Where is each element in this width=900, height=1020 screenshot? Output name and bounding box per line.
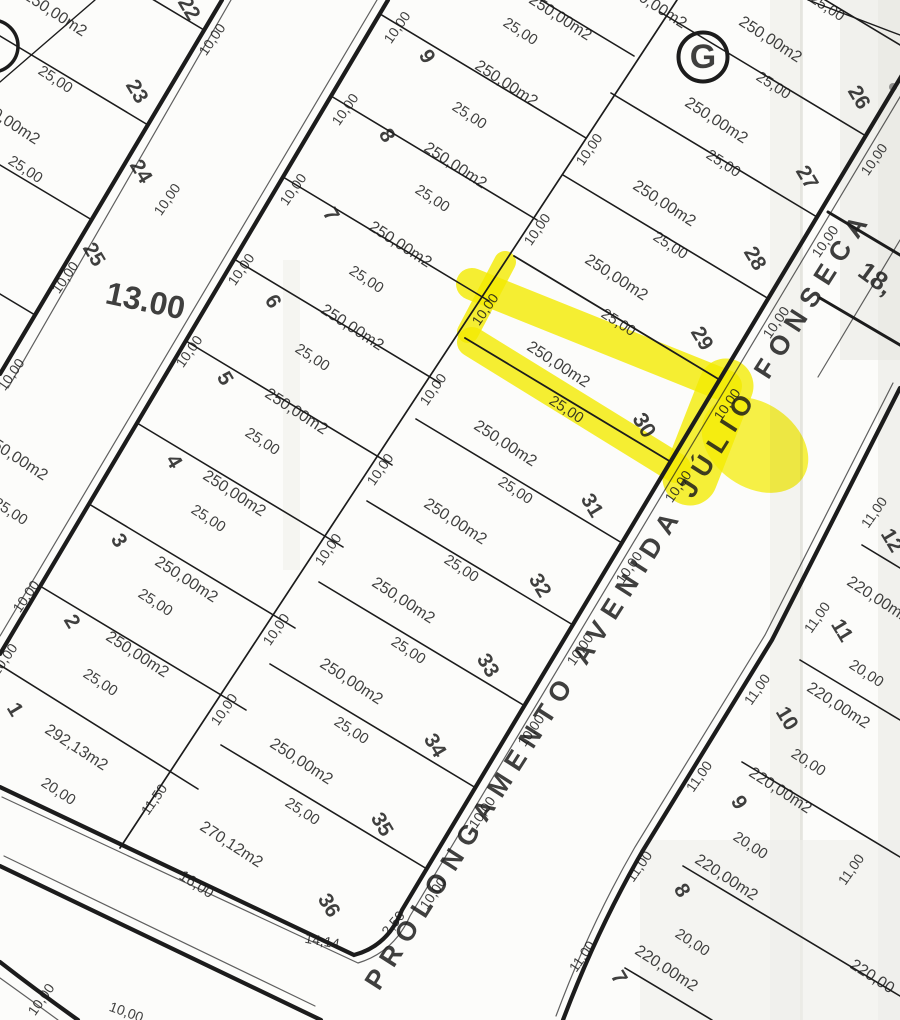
dimension-label: 10,00 [48, 258, 81, 296]
lot-number-label: 24 [125, 156, 157, 188]
dimension-label: 25,00 [135, 585, 176, 620]
lot-number-label: 22 [173, 0, 205, 24]
lot-number-label: 36 [313, 890, 345, 922]
dimension-label: 25,00 [449, 98, 490, 133]
lot-number-label: 7 [318, 204, 344, 226]
dimension-label: 25,00 [703, 146, 744, 181]
lot-number-label: 8 [374, 125, 400, 147]
dimension-label: 14,14 [304, 930, 341, 952]
dimension-label: 25,00 [282, 794, 323, 829]
dimension-label: 250,00m2 [582, 251, 651, 304]
lot-number-label: 23 [121, 76, 153, 108]
dimension-label: 250,00m2 [0, 95, 43, 148]
dimension-label: 11,50 [138, 781, 171, 818]
dimension-label: 25,00 [188, 501, 229, 536]
dimension-label: 25,00 [388, 633, 429, 668]
lot-number-label: 7 [606, 967, 632, 989]
scan-shadow-topright [840, 0, 900, 360]
dimension-label: 220,00m2 [804, 679, 873, 732]
dimension-label: 16,00 [176, 867, 217, 902]
dimension-label: 250,00m2 [267, 735, 336, 788]
lot-number-label: 6 [260, 291, 286, 313]
street-width-label: 13.00 [103, 275, 189, 327]
dimension-label: 250,00m2 [471, 417, 540, 470]
lot-number-label: 32 [524, 570, 556, 602]
dimension-label: 10,00 [207, 690, 240, 728]
dimension-label: 25,00 [650, 228, 691, 263]
lot-number-label: 11 [826, 615, 857, 646]
dimension-label: 25,00 [412, 181, 453, 216]
dimension-label: 250,00m2 [421, 139, 490, 192]
lot-number-label: 9 [726, 792, 752, 814]
dimension-label: 25,00 [441, 551, 482, 586]
block-marker-g: G [690, 38, 716, 76]
lot-number-label: 2 [59, 611, 85, 633]
dimension-label: 25,00 [5, 152, 46, 187]
lot-number-label: 1 [2, 699, 28, 721]
lot-number-label: 31 [576, 490, 608, 522]
dimension-label: 250,00m2 [318, 301, 387, 354]
plat-map-svg: 250,00m225,00222310,00250,00m225,002410,… [0, 0, 900, 1020]
lot-number-label: 25 [78, 239, 110, 271]
dimension-label: 250,00m2 [621, 0, 690, 32]
dimension-label: 25,00 [0, 494, 31, 529]
dimension-label: 10,00 [380, 8, 413, 46]
dimension-label: 250,00m2 [682, 94, 751, 147]
dimension-label: 250,00m2 [103, 628, 172, 681]
dimension-label: 10,00 [150, 180, 183, 218]
dimension-label: 20,00 [38, 774, 79, 809]
dimension-label: 10,00 [520, 210, 553, 248]
dimension-label: 25,00 [500, 14, 541, 49]
dimension-label: 25,00 [346, 262, 387, 297]
dimension-label: 10,00 [0, 640, 21, 678]
dimension-label: 10,00 [9, 577, 42, 615]
lot-number-label: 29 [686, 323, 718, 355]
lot-number-label: 9 [414, 46, 440, 68]
dimension-label: 250,00m2 [630, 177, 699, 230]
dimension-label: 10,00 [107, 998, 146, 1020]
dimension-label: 25,00 [331, 713, 372, 748]
dimension-label: 25,00 [80, 665, 121, 700]
dimension-label: 250,00m2 [472, 57, 541, 110]
dimension-label: 250,00m2 [317, 655, 386, 708]
dimension-label: 250,00m2 [369, 574, 438, 627]
dimension-label: 11,00 [741, 671, 774, 708]
dimension-label: 250,00m2 [366, 218, 435, 271]
lot-number-label: 3 [106, 530, 132, 552]
dimension-label: 292,13m2 [42, 721, 111, 774]
dimension-label: 250,00m2 [0, 431, 51, 484]
dimension-label: 25,00 [242, 424, 283, 459]
lot-number-label: 4 [161, 451, 187, 473]
dimension-label: 25,00 [35, 62, 76, 97]
lot-number-label: 5 [212, 368, 238, 390]
plat-map-scan: 250,00m225,00222310,00250,00m225,002410,… [0, 0, 900, 1020]
dimension-label: 10,00 [572, 130, 605, 168]
dimension-label: 270,12m2 [197, 818, 266, 871]
lot-number-label: 28 [739, 243, 771, 275]
